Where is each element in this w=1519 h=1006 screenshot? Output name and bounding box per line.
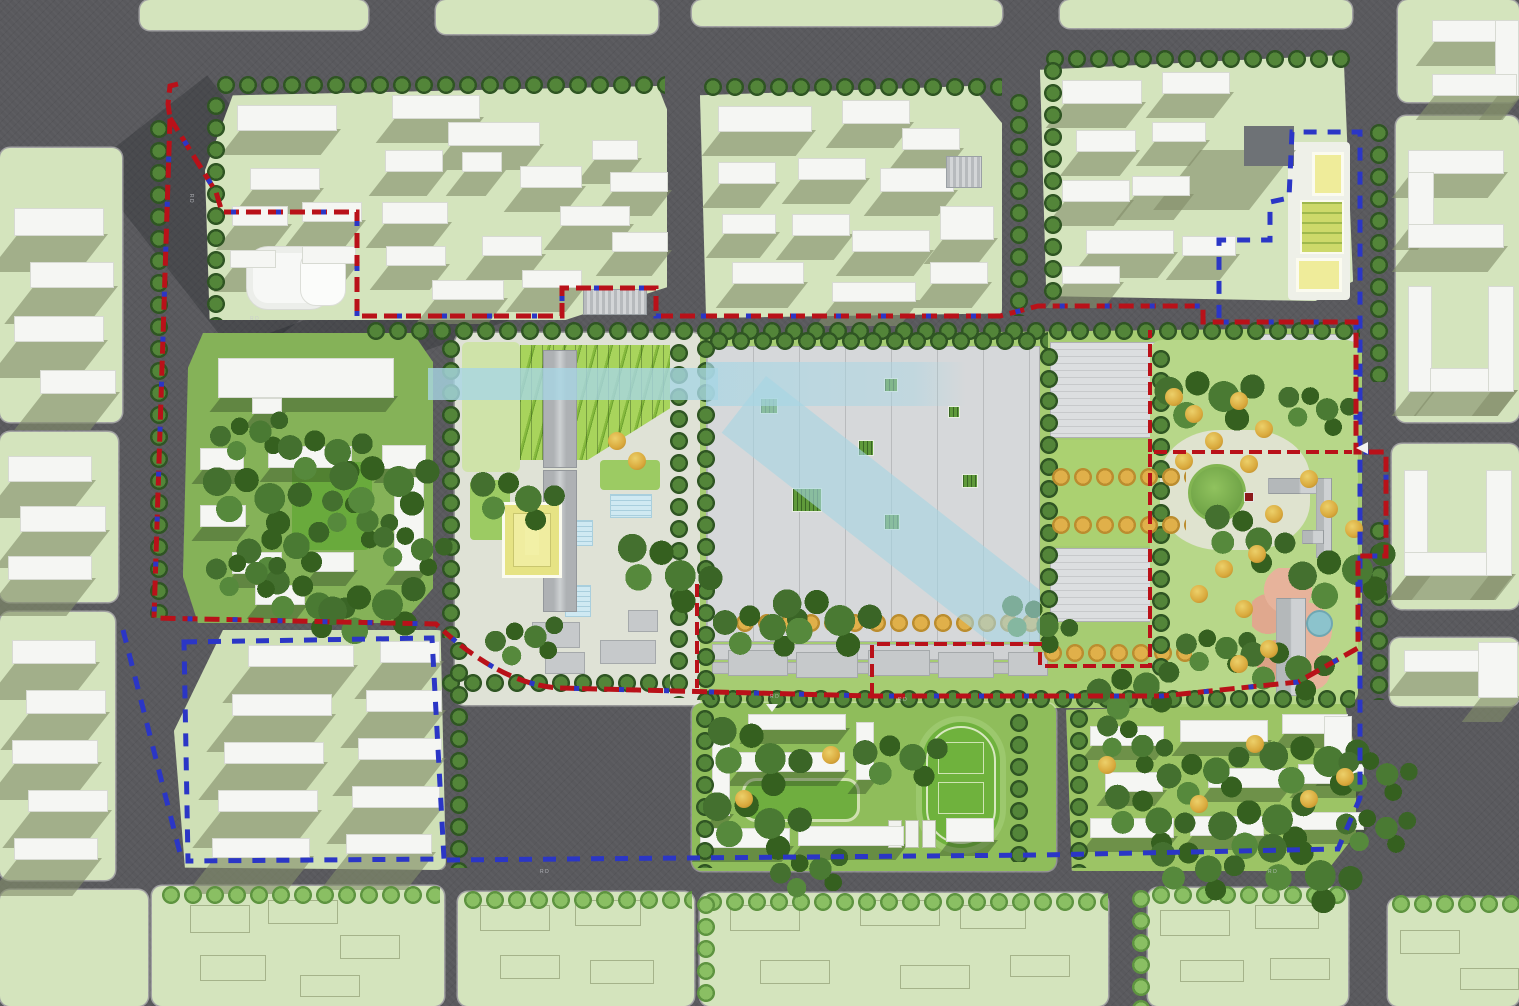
road-label: RD <box>770 694 780 700</box>
accent-tree <box>1336 768 1354 786</box>
city-block <box>436 0 658 34</box>
street-tree-row <box>1130 888 1154 1006</box>
planning-boundary-blue-line <box>123 630 181 857</box>
building <box>1062 80 1142 104</box>
park-gate-marker <box>1244 492 1254 502</box>
terraced-green-roof <box>1300 200 1344 254</box>
city-block <box>0 890 148 1006</box>
water-axis-band <box>722 376 1040 642</box>
unbuilt-parcel-outline <box>760 960 830 984</box>
accent-tree <box>1098 756 1116 774</box>
accent-tree <box>1248 545 1266 563</box>
road-label: RD <box>898 697 908 703</box>
accent-tree <box>1255 420 1273 438</box>
sports-court <box>922 820 936 848</box>
street-tree-row <box>205 95 229 320</box>
building <box>386 246 446 266</box>
road-label: RD <box>540 869 550 875</box>
building <box>1062 180 1130 202</box>
building <box>237 105 337 131</box>
accent-tree <box>1300 790 1318 808</box>
building <box>385 150 443 172</box>
masterplan-canvas: RD RD RD RD RD RD <box>0 0 1519 1006</box>
building <box>8 456 92 482</box>
building <box>930 262 988 284</box>
building <box>1182 236 1236 256</box>
building <box>382 202 448 224</box>
building <box>792 214 850 236</box>
accent-tree <box>1260 640 1278 658</box>
building <box>522 270 582 288</box>
reflecting-pool <box>610 494 652 518</box>
building <box>232 694 332 716</box>
road-label: RD <box>188 194 194 204</box>
building <box>1408 224 1504 248</box>
building-shadow <box>209 396 398 412</box>
building <box>218 358 394 398</box>
building <box>852 230 930 252</box>
unbuilt-parcel-outline <box>900 965 970 989</box>
accent-tree <box>608 432 626 450</box>
street-tree-row <box>1038 346 1062 641</box>
accent-tree <box>1320 500 1338 518</box>
tree-grove <box>848 732 962 793</box>
building <box>798 158 866 180</box>
yellow-roof-building <box>1312 152 1344 196</box>
building <box>902 128 960 150</box>
unbuilt-parcel-outline <box>300 975 360 997</box>
building <box>1408 150 1504 174</box>
accent-tree <box>1235 600 1253 618</box>
building <box>592 140 638 160</box>
building <box>1062 266 1120 284</box>
building <box>392 95 480 119</box>
building <box>250 168 320 190</box>
building <box>462 152 502 172</box>
building <box>12 740 98 764</box>
unbuilt-parcel-outline <box>1460 968 1519 990</box>
street-tree-row <box>160 884 440 908</box>
unbuilt-parcel-outline <box>200 955 266 981</box>
building <box>346 834 432 854</box>
building <box>40 370 116 394</box>
accent-tree <box>1175 452 1193 470</box>
building <box>946 818 994 842</box>
street-tree-row <box>215 74 665 98</box>
street-tree-row <box>1044 48 1352 72</box>
building <box>20 506 106 532</box>
building <box>1432 74 1517 96</box>
building <box>1076 130 1136 152</box>
building <box>28 790 108 812</box>
street-tree-row <box>448 640 472 868</box>
warehouse-building <box>938 652 994 678</box>
building-shadow <box>221 129 341 155</box>
street-tree-row <box>1042 60 1066 300</box>
building <box>448 122 540 146</box>
building <box>718 162 776 184</box>
unbuilt-parcel-outline <box>590 960 654 984</box>
building <box>482 236 542 256</box>
tree-grove <box>324 452 456 522</box>
building <box>352 786 440 808</box>
unbuilt-parcel-outline <box>190 905 250 933</box>
building <box>718 106 812 132</box>
building <box>880 168 954 192</box>
accent-tree <box>1300 470 1318 488</box>
building <box>302 246 356 264</box>
accent-tree <box>1190 795 1208 813</box>
building <box>230 250 276 268</box>
building <box>14 838 98 860</box>
building <box>1408 286 1432 392</box>
accent-tree <box>822 746 840 764</box>
building <box>612 232 668 252</box>
unbuilt-parcel-outline <box>340 935 400 959</box>
building <box>358 738 442 760</box>
water-axis-band-clip <box>706 346 1040 642</box>
building <box>432 280 504 300</box>
building <box>224 742 324 764</box>
city-block <box>692 0 1002 26</box>
building <box>218 790 318 812</box>
unbuilt-parcel-outline <box>1270 958 1330 980</box>
building <box>1152 122 1206 142</box>
building <box>30 262 114 288</box>
unbuilt-parcel-outline <box>1160 910 1230 936</box>
unbuilt-parcel-outline <box>500 955 560 979</box>
building <box>1132 176 1190 196</box>
building <box>560 206 630 226</box>
street-tree-row <box>1390 893 1519 917</box>
building <box>366 690 442 712</box>
city-block <box>140 0 368 30</box>
street-tree-row <box>440 672 670 696</box>
orchard-tree-row <box>1050 466 1186 490</box>
street-tree-row <box>702 76 1002 100</box>
building <box>14 316 104 342</box>
building <box>212 838 310 858</box>
building <box>1162 72 1230 94</box>
building <box>732 262 804 284</box>
city-block <box>1060 0 1352 28</box>
building <box>8 556 92 580</box>
accent-tree <box>1246 735 1264 753</box>
building <box>520 166 582 188</box>
accent-tree <box>1190 585 1208 603</box>
street-tree-row <box>1368 122 1392 382</box>
unbuilt-parcel-outline <box>1180 960 1244 982</box>
road-label: RD <box>250 316 260 322</box>
building <box>610 172 668 192</box>
campus-paving <box>462 342 520 472</box>
street-tree-row <box>462 889 692 913</box>
unbuilt-parcel-outline <box>1010 955 1070 977</box>
building <box>26 690 106 714</box>
accent-tree <box>1230 655 1248 673</box>
building <box>302 202 362 222</box>
street-tree-row <box>1008 712 1032 862</box>
road-label: RD <box>1268 869 1278 875</box>
warehouse-building <box>600 640 656 664</box>
sports-court <box>905 820 919 848</box>
building <box>832 282 916 302</box>
accent-tree <box>1265 505 1283 523</box>
building <box>232 206 288 226</box>
unbuilt-parcel-outline <box>1400 930 1460 954</box>
tree-grove <box>1332 806 1428 857</box>
building <box>940 206 994 240</box>
street-tree-row <box>1008 92 1032 316</box>
building <box>1486 470 1512 576</box>
accent-tree <box>1230 392 1248 410</box>
building <box>1488 286 1514 392</box>
street-tree-row <box>702 891 1108 915</box>
building <box>583 289 647 315</box>
accent-tree <box>1215 560 1233 578</box>
water-axis-band <box>706 362 966 406</box>
building <box>1478 642 1518 698</box>
accent-tree <box>1345 520 1363 538</box>
tree-grove <box>202 551 298 602</box>
dark-tower <box>1244 126 1294 166</box>
accent-tree <box>1185 405 1203 423</box>
building <box>946 156 982 188</box>
building <box>1408 172 1434 226</box>
building <box>1086 230 1174 254</box>
warehouse-building <box>628 610 658 632</box>
accent-tree <box>628 452 646 470</box>
street-tree-row <box>695 894 719 1006</box>
building <box>12 640 96 664</box>
street-tree-row <box>148 118 172 618</box>
accent-tree <box>1240 455 1258 473</box>
building <box>722 214 776 234</box>
accent-tree <box>735 790 753 808</box>
accent-tree <box>1165 388 1183 406</box>
accent-tree <box>1205 432 1223 450</box>
building <box>842 100 910 124</box>
building-shadow <box>1392 246 1508 272</box>
building <box>14 208 104 236</box>
orchard-tree-row <box>1050 514 1186 538</box>
water-axis-band <box>428 368 718 400</box>
yellow-roof-building <box>1296 258 1342 292</box>
